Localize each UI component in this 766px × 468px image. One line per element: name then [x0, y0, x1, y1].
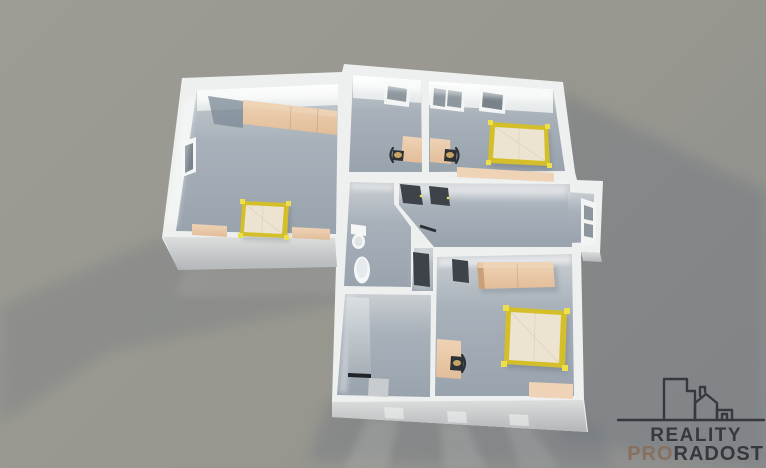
dresser-bottom-right — [529, 382, 573, 399]
door-handle — [420, 195, 423, 198]
pedestal-sink — [354, 257, 370, 284]
bath-mat — [368, 378, 389, 397]
logo-text-line2: PRORADOST — [627, 443, 764, 466]
outer-face-south-left-block — [163, 237, 337, 270]
chair-bottom — [450, 355, 465, 372]
door-bathroom — [413, 252, 430, 287]
render-canvas: REALITY PRORADOST — [0, 0, 766, 468]
double-bed-bottom — [501, 305, 570, 372]
logo-text-rest: RADOST — [674, 443, 764, 465]
door-top-right-room — [429, 186, 450, 206]
single-bed — [238, 199, 291, 242]
door-top-center-room — [400, 184, 423, 205]
entry-door — [581, 198, 596, 247]
buildings-outline-icon — [616, 370, 766, 425]
shower-glass-panel — [347, 297, 371, 376]
nightstand-right — [292, 227, 330, 240]
building — [162, 64, 603, 432]
desk-top-center — [401, 136, 422, 163]
door-bedroom-bottom — [452, 259, 469, 283]
nightstand-left — [192, 224, 227, 237]
door-handle — [447, 197, 450, 200]
outer-face-south-entry-bay — [581, 252, 602, 262]
logo-text-accent: PRO — [627, 443, 673, 465]
chair-top-right — [444, 148, 459, 163]
wardrobe-bottom — [477, 262, 559, 293]
double-bed-top-right — [486, 120, 552, 170]
